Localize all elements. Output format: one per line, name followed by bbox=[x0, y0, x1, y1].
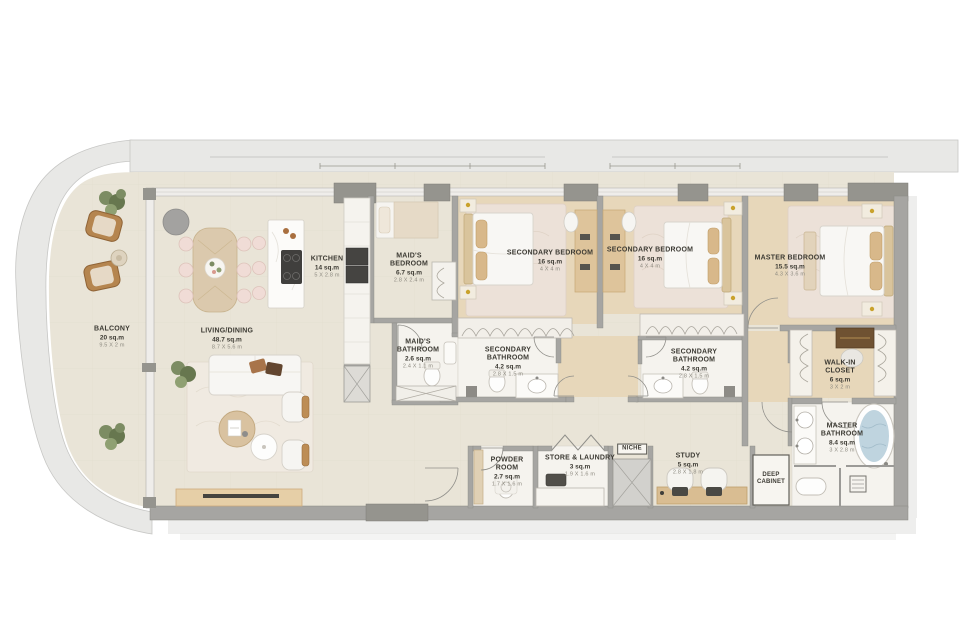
room-label-secondary-bedroom-2: SECONDARY BEDROOM 16 sq.m 4 X 4 m bbox=[607, 246, 693, 269]
room-label-deep-cabinet: DEEP CABINET bbox=[753, 472, 789, 486]
room-label-niche: NICHE bbox=[617, 444, 647, 455]
room-label-secondary-bedroom-1: SECONDARY BEDROOM 16 sq.m 4 X 4 m bbox=[507, 249, 593, 272]
room-label-maids-bathroom: MAID'S BATHROOM 2.6 sq.m 2.4 X 1.1 m bbox=[393, 338, 443, 369]
room-label-kitchen: KITCHEN 14 sq.m 5 X 2.8 m bbox=[311, 255, 344, 278]
room-label-secondary-bathroom-1: SECONDARY BATHROOM 4.2 sq.m 2.8 X 1.5 m bbox=[480, 346, 536, 377]
room-label-balcony: BALCONY 20 sq.m 9.5 X 2 m bbox=[94, 325, 130, 348]
room-label-powder-room: POWDER ROOM 2.7 sq.m 1.7 X 1.6 m bbox=[485, 456, 529, 487]
floor-plan-page: BALCONY 20 sq.m 9.5 X 2 m LIVING/DINING … bbox=[0, 0, 963, 624]
room-label-study: STUDY 5 sq.m 2.8 X 1.8 m bbox=[673, 452, 703, 475]
room-labels-layer: BALCONY 20 sq.m 9.5 X 2 m LIVING/DINING … bbox=[0, 0, 963, 624]
room-label-maids-bedroom: MAID'S BEDROOM 6.7 sq.m 2.8 X 2.4 m bbox=[386, 252, 432, 283]
room-label-store-laundry: STORE & LAUNDRY 3 sq.m 1.9 X 1.6 m bbox=[545, 454, 615, 477]
room-label-walk-in-closet: WALK-IN CLOSET 6 sq.m 3 X 2 m bbox=[818, 359, 862, 390]
room-label-master-bedroom: MASTER BEDROOM 15.5 sq.m 4.3 X 3.6 m bbox=[755, 254, 826, 277]
room-label-master-bathroom: MASTER BATHROOM 8.4 sq.m 3 X 2.8 m bbox=[816, 422, 868, 453]
room-label-secondary-bathroom-2: SECONDARY BATHROOM 4.2 sq.m 2.8 X 1.5 m bbox=[666, 348, 722, 379]
room-label-living-dining: LIVING/DINING 48.7 sq.m 8.7 X 5.6 m bbox=[201, 327, 253, 350]
